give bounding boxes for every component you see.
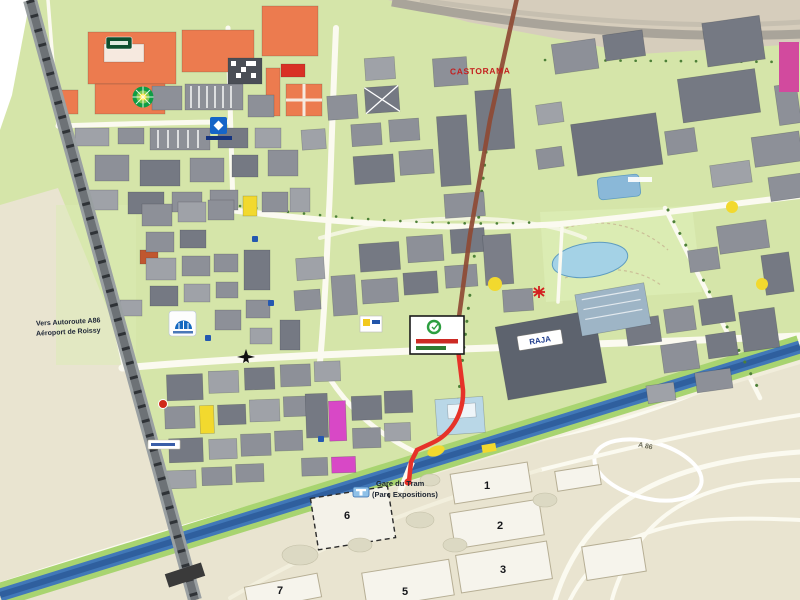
map-canvas[interactable]: CASTORAMA RAJA Gare du Tram (Parc Exposi…	[0, 0, 800, 600]
map-svg	[0, 0, 800, 600]
bp-logo[interactable]	[133, 87, 154, 108]
route-end-marker	[404, 478, 411, 485]
pink-building	[779, 42, 799, 92]
chip-logo[interactable]	[360, 316, 382, 332]
tram-station-icon[interactable]	[353, 487, 369, 497]
dome-logo[interactable]	[169, 311, 196, 336]
highlight-callout[interactable]	[410, 316, 464, 354]
green-sign[interactable]	[106, 37, 132, 49]
red-asterisk-icon[interactable]	[533, 286, 545, 298]
